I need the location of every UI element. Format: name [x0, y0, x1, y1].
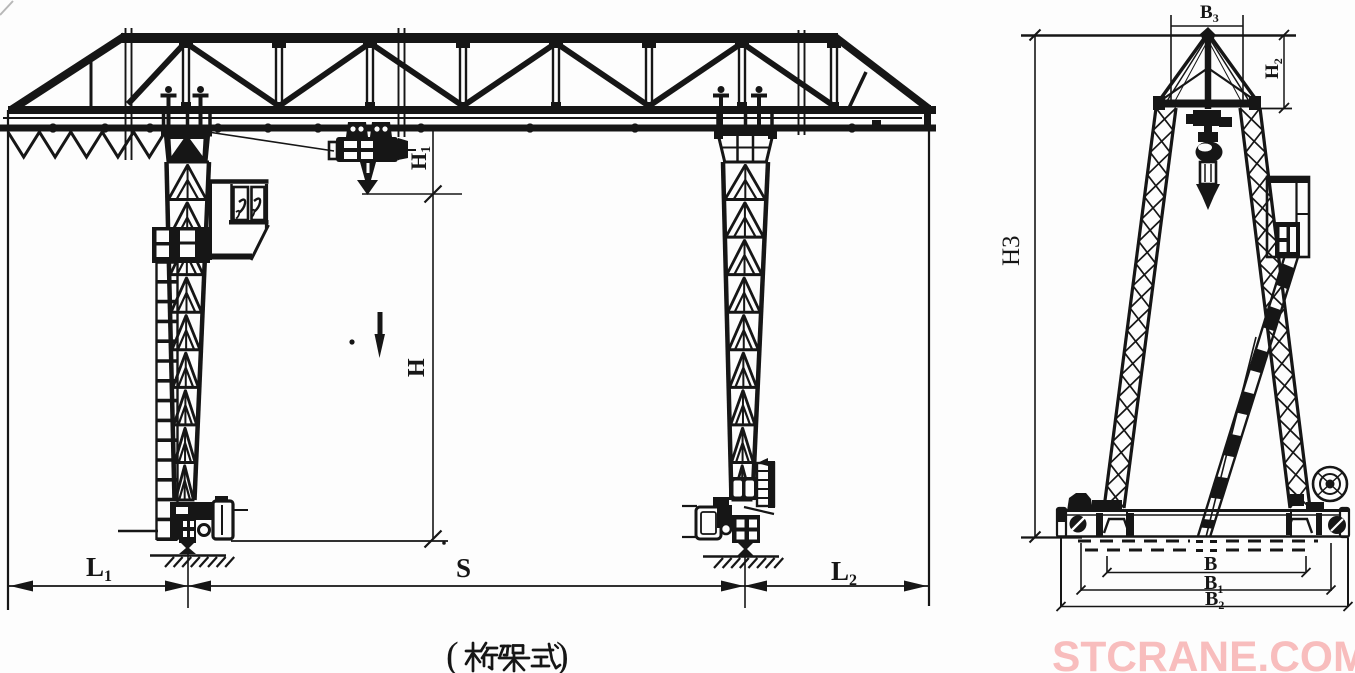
svg-text:(: (	[446, 635, 459, 673]
svg-text:STCRANE.COM: STCRANE.COM	[1052, 634, 1355, 673]
svg-text:H: H	[404, 358, 430, 377]
svg-text:S: S	[456, 553, 471, 583]
svg-text:H3: H3	[998, 235, 1025, 266]
